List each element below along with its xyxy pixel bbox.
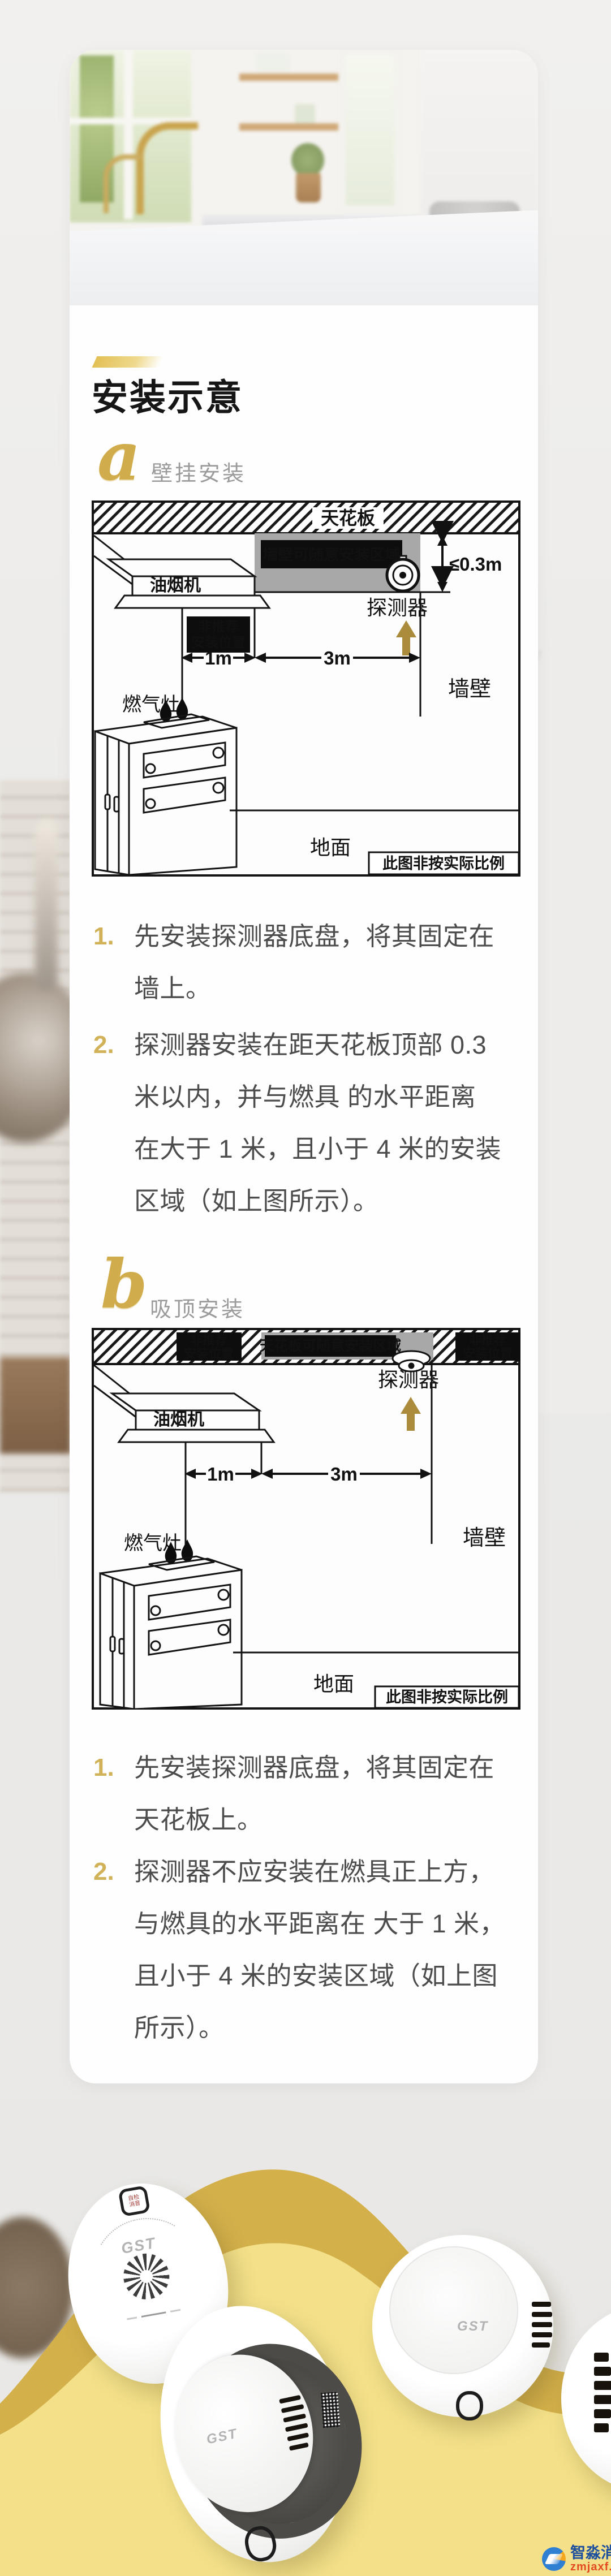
step-line: 探测器不应安装在燃具正上方， [134,1846,507,1898]
background-ladle-blur [35,820,58,990]
vent-slots [594,2353,611,2432]
diagram-ceiling-mount: 非推荐 安装位置 天花板可随意安装区域 非推荐 安装位置 探测器 油烟机 [92,1328,520,1710]
floor-label: 地面 [313,1672,354,1695]
diagram-wall-mount: 天花板 墙壁可随意安装区域 ≤0.3m 探测器 [92,500,520,877]
step-line: 所示）。 [134,2002,507,2054]
background-wood-shelf-blur [0,1357,71,1453]
qr-code [321,2392,340,2428]
scale-note: 此图非按实际比例 [386,1688,508,1706]
step-number: 1. [93,1742,134,1846]
step-a1: 1. 先安装探测器底盘，将其固定在 墙上。 [93,911,507,1015]
not-recommended-line1: 非推荐 [198,619,239,635]
step-line: 天花板上。 [134,1794,507,1846]
step-number: 2. [93,1846,134,2054]
step-line: 区域（如上图所示）。 [134,1175,507,1227]
dim-1m: 1m [205,648,232,668]
step-line: 先安装探测器底盘，将其固定在 [134,1742,507,1794]
step-number: 1. [93,911,134,1015]
ceiling-hatch-band [93,502,519,533]
hood-label: 油烟机 [150,576,201,595]
hood-label: 油烟机 [153,1410,204,1429]
button-label-2: 消音 [128,2200,141,2208]
floor-label: 地面 [310,836,351,859]
brand-logo: GST [457,2319,488,2335]
step-line: 与燃具的水平距离在 大于 1 米， [134,1898,507,1950]
step-a2: 2. 探测器安装在距天花板顶部 0.3 米以内，并与燃具 的水平距离 在大于 1… [93,1019,507,1227]
title-accent-bar [92,356,164,368]
detector-label: 探测器 [367,596,428,619]
ceiling-label: 天花板 [321,508,375,528]
dim-3m: 3m [330,1464,358,1485]
not-recommended-right-2: 安装位置 [463,1347,513,1361]
dim-3m: 3m [324,648,351,668]
vent-slots [532,2302,552,2348]
scale-note: 此图非按实际比例 [382,855,505,872]
kitchen-photo [70,50,538,305]
watermark-logo-icon [542,2547,566,2571]
dim-1m: 1m [207,1464,234,1485]
not-recommended-right-1: 非推荐 [469,1333,506,1347]
step-line: 探测器安装在距天花板顶部 0.3 [134,1019,507,1071]
section-b-letter: b [101,1251,148,1318]
detector-product-right: GST [372,2235,553,2417]
step-b2: 2. 探测器不应安装在燃具正上方， 与燃具的水平距离在 大于 1 米， 且小于 … [93,1846,507,2054]
test-button-ring [456,2391,483,2420]
watermark: 智淼消防 zmjaxf.com [542,2545,611,2573]
cabinet [95,714,236,875]
step-line: 先安装探测器底盘，将其固定在 [134,911,507,963]
product-detail-page: 安装示意 a 壁挂安装 天花板 墙壁可随意安装区域 [0,0,611,2576]
step-number: 2. [93,1019,134,1227]
section-a-letter: a [97,423,140,490]
not-recommended-left-2: 安装位置 [184,1347,234,1361]
ceiling-zone-label: 天花板可随意安装区域 [260,1337,401,1354]
step-line: 墙上。 [134,963,507,1015]
self-test-mute-button: 自检 消音 [118,2185,150,2217]
clearance-label: ≤0.3m [449,554,502,575]
watermark-name: 智淼消防 [570,2545,611,2561]
cabinet [100,1556,242,1709]
not-recommended-left-1: 非推荐 [190,1333,227,1347]
watermark-site: zmjaxf.com [570,2561,611,2573]
page-title: 安装示意 [92,369,243,421]
step-line: 且小于 4 米的安装区域（如上图 [134,1950,507,2002]
wall-label: 墙壁 [463,1526,506,1550]
step-line: 在大于 1 米，且小于 4 米的安装 [134,1123,507,1175]
wall-zone-label: 墙壁可随意安装区域 [263,546,401,563]
background-marble-right [539,650,611,1414]
detector-face [389,2246,518,2374]
section-b-label: 吸顶安装 [150,1292,245,1323]
step-line: 米以内，并与燃具 的水平距离 [134,1071,507,1123]
detector-label: 探测器 [378,1368,439,1391]
wall-label: 墙壁 [448,678,491,701]
step-b1: 1. 先安装探测器底盘，将其固定在 天花板上。 [93,1742,507,1846]
section-a-label: 壁挂安装 [151,456,246,487]
